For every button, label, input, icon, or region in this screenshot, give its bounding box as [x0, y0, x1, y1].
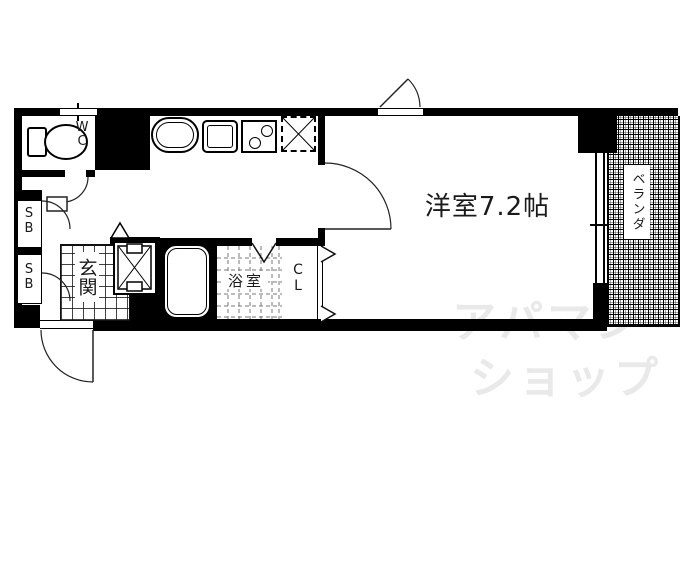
- wall-balcony-bottom-block: [593, 283, 607, 331]
- closet-bifold-arrows: [319, 244, 339, 324]
- sliding-window-divider-tick: [590, 224, 607, 226]
- wc-label: WC: [74, 121, 90, 149]
- kitchen-sink-icon: [151, 117, 199, 153]
- wall-wc-right-block: [95, 108, 150, 170]
- bathtub-inner: [167, 248, 207, 315]
- bathtub-icon: [163, 244, 211, 319]
- balcony-sliding-window: [595, 153, 605, 283]
- wall-bath-top: [217, 238, 252, 246]
- wc-window: [60, 108, 97, 116]
- kitchen-counter-inner: [207, 125, 233, 148]
- washing-machine-space: [113, 241, 157, 295]
- wall-above-shoebox: [22, 190, 42, 200]
- refrigerator-x: [283, 118, 314, 150]
- stove-icon: [241, 120, 277, 153]
- entrance-door-swing: [38, 325, 100, 387]
- wall-closet-top: [276, 238, 322, 246]
- watermark-line2: ショップ: [470, 342, 662, 406]
- refrigerator-space-icon: [281, 116, 316, 152]
- kitchen-sink-inner: [156, 122, 194, 148]
- stove-burner-left: [249, 137, 261, 149]
- wall-balcony-top-block: [578, 108, 617, 153]
- floor-plan: アパマン ショップ WC: [0, 0, 690, 575]
- balcony-label: ベランダ: [624, 165, 650, 239]
- closet-label: CL: [290, 262, 306, 294]
- shoe-box-door-swings: [40, 198, 74, 304]
- washing-machine-glyph: [115, 243, 154, 292]
- main-room-label: 洋室7.2帖: [395, 186, 580, 218]
- washer-triangle-marker: [109, 221, 131, 240]
- shoe-box-top-label: SB: [22, 206, 36, 236]
- top-door-swing: [376, 74, 426, 110]
- bathroom-label: 浴室: [224, 271, 268, 289]
- main-room-door-swing: [320, 158, 396, 234]
- kitchen-counter-icon: [202, 120, 238, 153]
- wall-kitchen-right-upper: [318, 108, 325, 165]
- entrance-label: 玄関: [75, 252, 99, 302]
- bathroom-folding-door: [249, 240, 281, 266]
- stove-burner-right: [261, 125, 273, 137]
- shoe-box-bottom-label: SB: [22, 262, 36, 292]
